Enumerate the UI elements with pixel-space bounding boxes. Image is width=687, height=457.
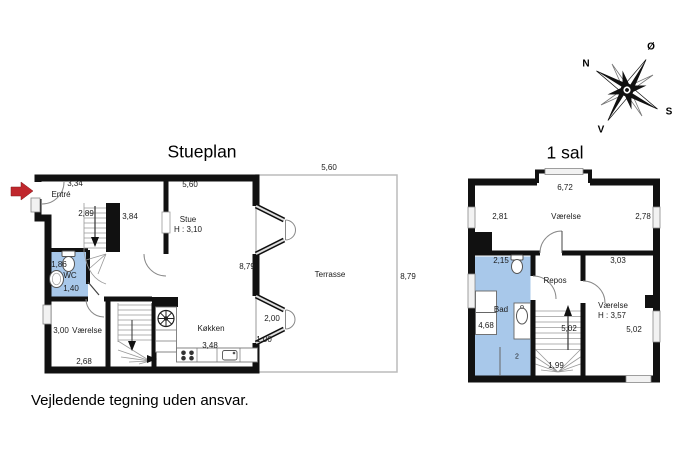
dim-5-60-terrasse: 5,60 <box>321 164 337 172</box>
interior-opening <box>162 212 170 233</box>
dim-5-02-right: 5,02 <box>626 326 642 334</box>
chimney-block <box>468 232 492 252</box>
dim-2-68: 2,68 <box>76 358 92 366</box>
dim-8-79-terrasse: 8,79 <box>400 273 416 281</box>
compass-rose-icon <box>577 40 676 139</box>
dim-2-89: 2,89 <box>78 210 94 218</box>
dim-1-99: 1,99 <box>548 362 564 370</box>
compass-west-label: V <box>598 125 605 136</box>
dim-2-partial: 2 <box>515 354 519 361</box>
window-bottom <box>626 376 651 383</box>
room-label-vaerelse: Værelse <box>72 327 102 335</box>
wc-sink-icon <box>50 271 64 288</box>
vaerelse-door-arc <box>86 299 104 317</box>
kitchen-wall-cap <box>152 297 178 307</box>
kitchen-unit <box>156 307 177 352</box>
dim-2-78: 2,78 <box>635 213 651 221</box>
stair-wall-block <box>106 203 120 252</box>
kitchen-sink-icon <box>223 351 238 361</box>
dim-1-00: 1,00 <box>256 336 272 344</box>
dim-5-02-stairs: 5,02 <box>561 325 577 333</box>
wall-notch <box>645 295 657 308</box>
window-right-bottom <box>653 311 660 342</box>
dim-1-40: 1,40 <box>63 285 79 293</box>
stueplan-title: Stueplan <box>167 142 236 163</box>
window-dormer <box>545 169 583 175</box>
first-floor-title: 1 sal <box>547 143 584 164</box>
room-label-bad: Bad <box>494 306 508 314</box>
window-entre <box>31 198 40 212</box>
dim-2-81: 2,81 <box>492 213 508 221</box>
dim-1-86: 1,86 <box>51 261 67 269</box>
bad-toilet-icon <box>511 255 523 274</box>
room-height-stue: H : 3,10 <box>174 226 202 234</box>
dim-3-84: 3,84 <box>122 213 138 221</box>
vaerelse-top-door-arc <box>540 231 562 253</box>
room-label-stue: Stue <box>180 216 196 224</box>
dim-5-60-top: 5,60 <box>182 181 198 189</box>
dim-8-79-inner: 8,79 <box>239 263 255 271</box>
disclaimer-text: Vejledende tegning uden ansvar. <box>31 392 249 409</box>
bad-sink-icon <box>514 303 531 339</box>
window-left-top <box>468 207 475 228</box>
dim-3-00: 3,00 <box>53 327 69 335</box>
window-right-top <box>653 207 660 228</box>
room-label-terrasse: Terrasse <box>315 271 346 279</box>
compass-north-label: N <box>582 59 589 70</box>
repos-door-arc <box>583 281 605 303</box>
room-label-vaerelse-top: Værelse <box>551 213 581 221</box>
hall-door-arc <box>144 254 166 276</box>
window-vaerelse <box>43 305 51 324</box>
window-bad <box>468 274 475 308</box>
room-label-wc: WC <box>63 272 76 280</box>
compass-south-label: S <box>666 107 673 118</box>
stairs-lower-icon <box>118 303 157 364</box>
compass-east-label: Ø <box>647 42 655 53</box>
dim-4-68: 4,68 <box>478 322 494 330</box>
floorplan-page: Stueplan 1 sal 3,34 Entré 5,60 2,89 3,84… <box>0 0 687 457</box>
front-door-opening <box>34 182 42 199</box>
room-label-repos: Repos <box>543 277 566 285</box>
wc-door-leaf <box>88 282 99 295</box>
room-label-entre: Entré <box>51 191 70 199</box>
room-height-vaerelse-right: H : 3,57 <box>598 312 626 320</box>
kitchen-counter <box>177 348 258 362</box>
entrance-arrow-icon <box>11 182 33 200</box>
cooker-fan-icon <box>158 311 174 327</box>
dim-3-48: 3,48 <box>202 342 218 350</box>
dim-2-15: 2,15 <box>493 257 509 265</box>
room-label-vaerelse-right: Værelse <box>598 302 628 310</box>
dim-3-03: 3,03 <box>610 257 626 265</box>
room-label-koekken: Køkken <box>197 325 224 333</box>
first-floor-door-arcs <box>533 231 605 303</box>
dim-6-72: 6,72 <box>557 184 573 192</box>
dim-2-00: 2,00 <box>264 315 280 323</box>
dim-3-34: 3,34 <box>67 180 83 188</box>
